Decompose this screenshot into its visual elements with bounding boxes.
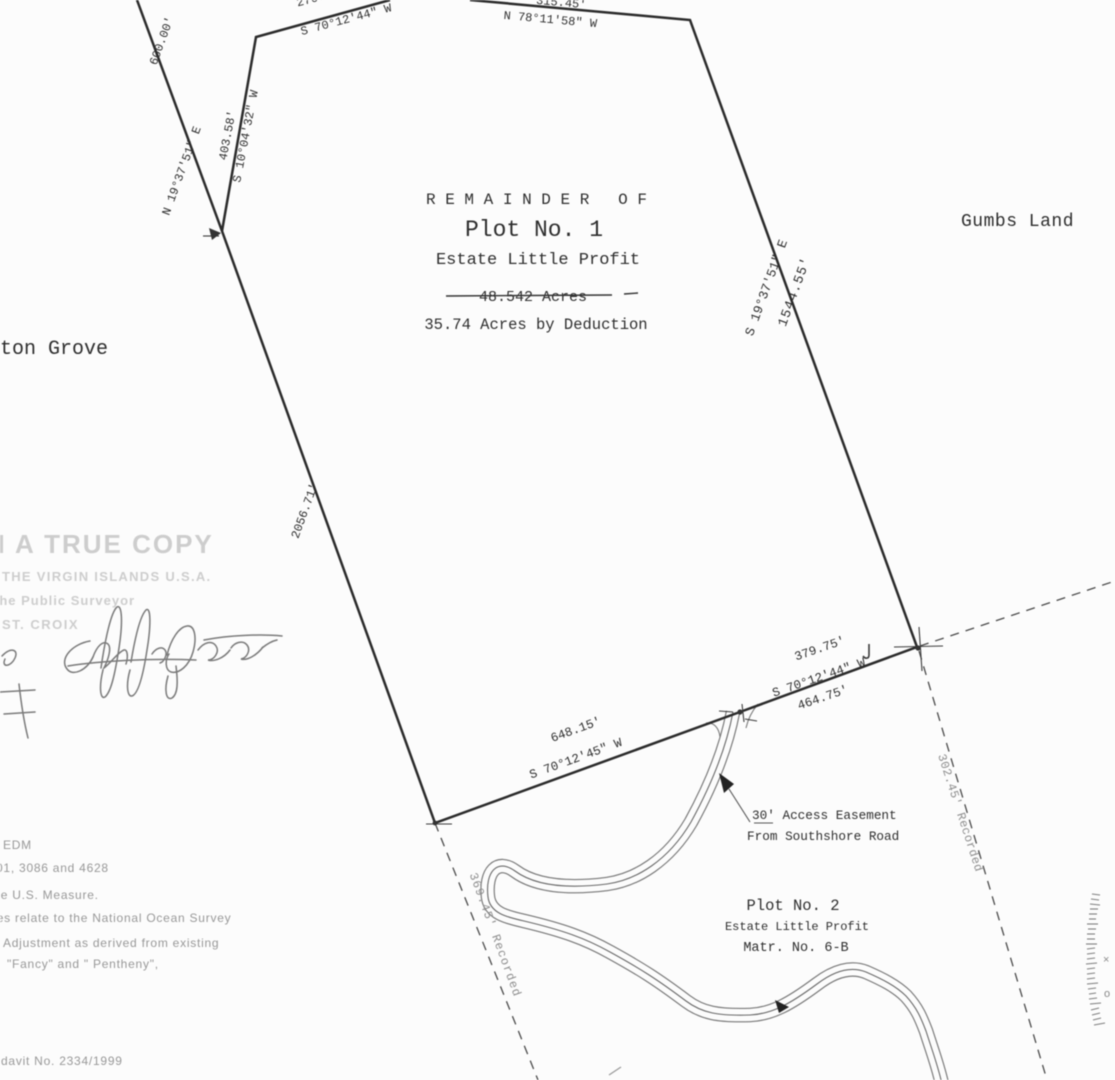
svg-text:ton Grove: ton Grove [0, 338, 108, 361]
svg-text:REMAINDER OF: REMAINDER OF [426, 191, 647, 209]
svg-text:Estate Little Profit: Estate Little Profit [436, 251, 640, 270]
svg-text:N 19°37'51" E: N 19°37'51" E [160, 125, 205, 218]
svg-text:48.542 Acres: 48.542 Acres [479, 289, 587, 306]
svg-text:ces relate to the National Oce: ces relate to the National Ocean Survey [0, 911, 231, 925]
svg-text:N A TRUE COPY: N A TRUE COPY [0, 529, 214, 559]
svg-text:davit No. 2334/1999: davit No. 2334/1999 [1, 1054, 123, 1068]
svg-text:Plot No. 2: Plot No. 2 [746, 897, 839, 915]
svg-text:648.15': 648.15' [549, 715, 603, 746]
svg-text:N 78°11'58" W: N 78°11'58" W [503, 9, 598, 31]
svg-text:o: o [1104, 988, 1110, 1000]
svg-text:315.45': 315.45' [536, 0, 587, 12]
svg-text:ST. CROIX: ST. CROIX [2, 617, 79, 632]
svg-text:"Fancy" and " Pentheny",: "Fancy" and " Pentheny", [7, 957, 159, 971]
svg-text:From Southshore Road: From Southshore Road [747, 829, 899, 844]
svg-text:2056.71': 2056.71' [289, 482, 322, 541]
svg-text:THE VIRGIN ISLANDS U.S.A.: THE VIRGIN ISLANDS U.S.A. [2, 569, 211, 584]
svg-text:Gumbs Land: Gumbs Land [961, 212, 1074, 232]
svg-text:369.45' Recorded: 369.45' Recorded [466, 871, 524, 999]
svg-text:Plot No. 1: Plot No. 1 [465, 217, 603, 243]
svg-text:35.74 Acres by Deduction: 35.74 Acres by Deduction [424, 316, 647, 334]
svg-text:276.83': 276.83' [295, 0, 347, 10]
svg-text:01, 3086 and 4628: 01, 3086 and 4628 [0, 861, 109, 875]
svg-text:×: × [1103, 954, 1109, 966]
svg-text:Estate Little Profit: Estate Little Profit [725, 920, 869, 934]
svg-text:Adjustment as derived from exi: Adjustment as derived from existing [3, 936, 219, 950]
svg-text:302.45' Recorded: 302.45' Recorded [934, 752, 985, 874]
svg-text:EDM: EDM [3, 838, 32, 852]
svg-text:379.75': 379.75' [793, 634, 847, 664]
svg-text:the Public Surveyor: the Public Surveyor [0, 593, 135, 608]
svg-text:30' Access Easement: 30' Access Easement [752, 808, 897, 823]
svg-text:re U.S. Measure.: re U.S. Measure. [0, 888, 99, 902]
svg-text:Matr. No. 6-B: Matr. No. 6-B [743, 941, 848, 956]
